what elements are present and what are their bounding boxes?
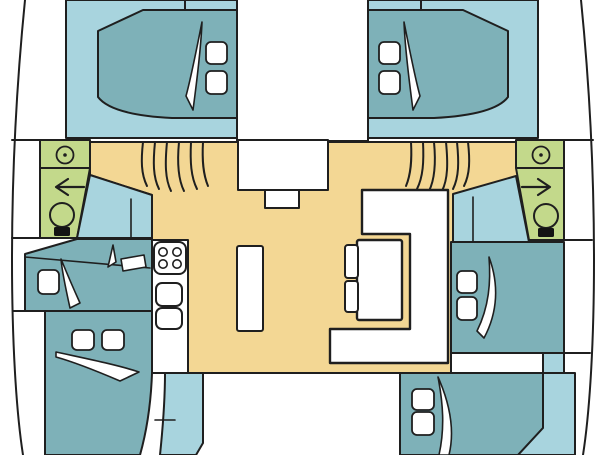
seat	[345, 245, 358, 278]
nav-console	[238, 140, 328, 190]
pillow	[379, 71, 400, 94]
island-counter	[237, 246, 263, 331]
pillow	[102, 330, 124, 350]
pillow	[412, 412, 434, 435]
starboard-side-deck-step	[543, 353, 564, 373]
starboard-mid-cabin	[451, 242, 564, 353]
toilet-seat-icon	[54, 227, 70, 236]
pillow	[412, 389, 434, 410]
port-aft-cabin	[45, 311, 152, 455]
dinette-table	[357, 240, 402, 320]
pillow	[206, 71, 227, 94]
pillow	[457, 271, 477, 293]
bow-deck	[237, 0, 368, 141]
sink-basin-icon	[156, 308, 182, 329]
pillow	[457, 297, 477, 320]
toilet-seat-icon	[538, 228, 554, 237]
sink-drain-icon	[63, 153, 67, 157]
sink-drain-icon	[539, 153, 543, 157]
port-stern-platform	[160, 373, 203, 455]
console-step	[265, 190, 299, 208]
pillow	[72, 330, 94, 350]
plan-root	[12, 0, 594, 455]
port-hull-outline	[12, 0, 25, 455]
pillow	[38, 270, 59, 294]
sink-basin-icon	[156, 283, 182, 306]
floor-plan-canvas	[0, 0, 606, 455]
starboard-aft-cabin	[400, 373, 543, 455]
port-mid-cabin	[25, 239, 152, 311]
pillow	[206, 42, 227, 64]
catamaran-floor-plan	[0, 0, 606, 455]
port-aft-bed	[45, 311, 152, 455]
starboard-hull-outline	[581, 0, 594, 455]
galley	[152, 240, 188, 373]
pillow	[379, 42, 400, 64]
stove-icon	[154, 242, 186, 274]
seat	[345, 281, 358, 312]
